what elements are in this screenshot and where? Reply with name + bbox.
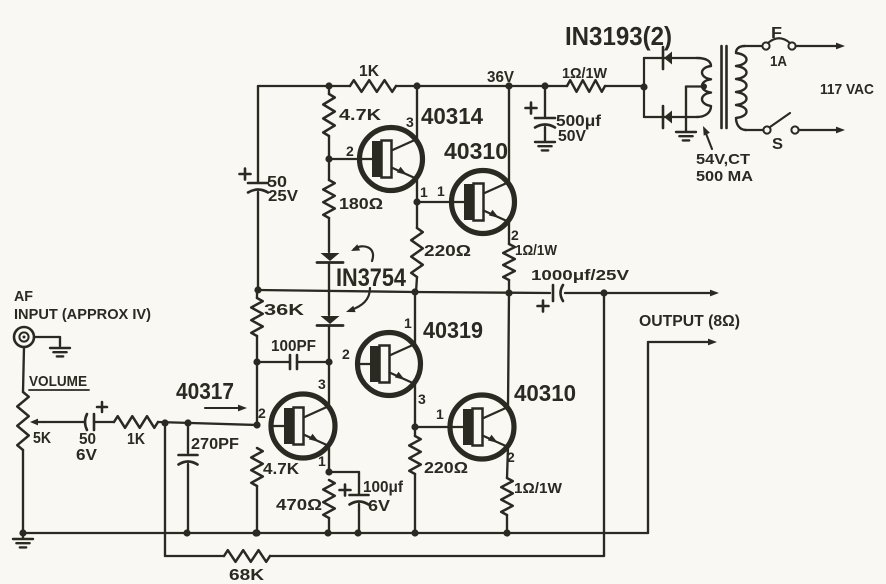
svg-text:1000μf/25V: 1000μf/25V bbox=[531, 267, 629, 284]
svg-text:2: 2 bbox=[346, 143, 354, 159]
svg-text:F: F bbox=[771, 25, 782, 42]
svg-text:36V: 36V bbox=[487, 69, 514, 86]
svg-text:40319: 40319 bbox=[423, 317, 483, 343]
svg-text:4.7K: 4.7K bbox=[263, 461, 299, 478]
svg-text:40310: 40310 bbox=[514, 380, 576, 406]
svg-text:470Ω: 470Ω bbox=[276, 497, 322, 514]
svg-text:6V: 6V bbox=[76, 447, 97, 464]
svg-text:25V: 25V bbox=[268, 188, 298, 205]
svg-text:220Ω: 220Ω bbox=[424, 460, 468, 477]
svg-text:36K: 36K bbox=[264, 302, 305, 319]
svg-text:4.7K: 4.7K bbox=[339, 107, 382, 124]
svg-text:3: 3 bbox=[318, 376, 326, 392]
svg-text:IN3754: IN3754 bbox=[336, 264, 406, 292]
svg-text:500 MA: 500 MA bbox=[696, 168, 753, 185]
svg-text:40317: 40317 bbox=[176, 378, 234, 404]
svg-text:50: 50 bbox=[79, 431, 96, 448]
svg-text:1: 1 bbox=[404, 315, 412, 331]
svg-text:OUTPUT (8Ω): OUTPUT (8Ω) bbox=[639, 313, 740, 330]
svg-text:1Ω/1W: 1Ω/1W bbox=[514, 480, 563, 497]
svg-text:1: 1 bbox=[436, 406, 444, 422]
svg-text:100PF: 100PF bbox=[271, 338, 316, 355]
svg-text:54V,CT: 54V,CT bbox=[696, 151, 750, 168]
svg-text:IN3193(2): IN3193(2) bbox=[565, 21, 672, 51]
svg-text:6V: 6V bbox=[368, 498, 390, 515]
svg-text:100μf: 100μf bbox=[363, 479, 404, 496]
svg-text:5K: 5K bbox=[33, 430, 51, 447]
svg-text:1: 1 bbox=[420, 184, 428, 200]
svg-text:3: 3 bbox=[406, 114, 414, 130]
svg-text:1K: 1K bbox=[127, 431, 145, 448]
svg-text:1A: 1A bbox=[770, 53, 787, 70]
svg-text:1: 1 bbox=[437, 183, 445, 199]
svg-text:1Ω/1W: 1Ω/1W bbox=[562, 65, 608, 82]
svg-text:AF: AF bbox=[14, 288, 33, 305]
svg-text:117 VAC: 117 VAC bbox=[820, 81, 874, 98]
svg-text:50V: 50V bbox=[558, 128, 586, 145]
svg-text:INPUT (APPROX IV): INPUT (APPROX IV) bbox=[14, 306, 151, 323]
svg-text:1K: 1K bbox=[359, 63, 379, 80]
svg-text:270PF: 270PF bbox=[191, 436, 239, 453]
svg-text:220Ω: 220Ω bbox=[424, 243, 471, 260]
svg-text:VOLUME: VOLUME bbox=[29, 373, 87, 390]
svg-text:S: S bbox=[772, 136, 783, 153]
svg-text:40314: 40314 bbox=[421, 103, 483, 129]
svg-text:2: 2 bbox=[511, 227, 519, 243]
svg-text:180Ω: 180Ω bbox=[339, 196, 383, 213]
svg-text:1: 1 bbox=[318, 453, 326, 469]
svg-text:3: 3 bbox=[418, 391, 426, 407]
svg-text:2: 2 bbox=[342, 346, 350, 362]
svg-text:68K: 68K bbox=[229, 567, 265, 584]
svg-text:2: 2 bbox=[258, 405, 266, 421]
svg-text:40310: 40310 bbox=[444, 138, 508, 164]
svg-text:1Ω/1W: 1Ω/1W bbox=[515, 242, 558, 259]
svg-text:2: 2 bbox=[507, 449, 515, 465]
